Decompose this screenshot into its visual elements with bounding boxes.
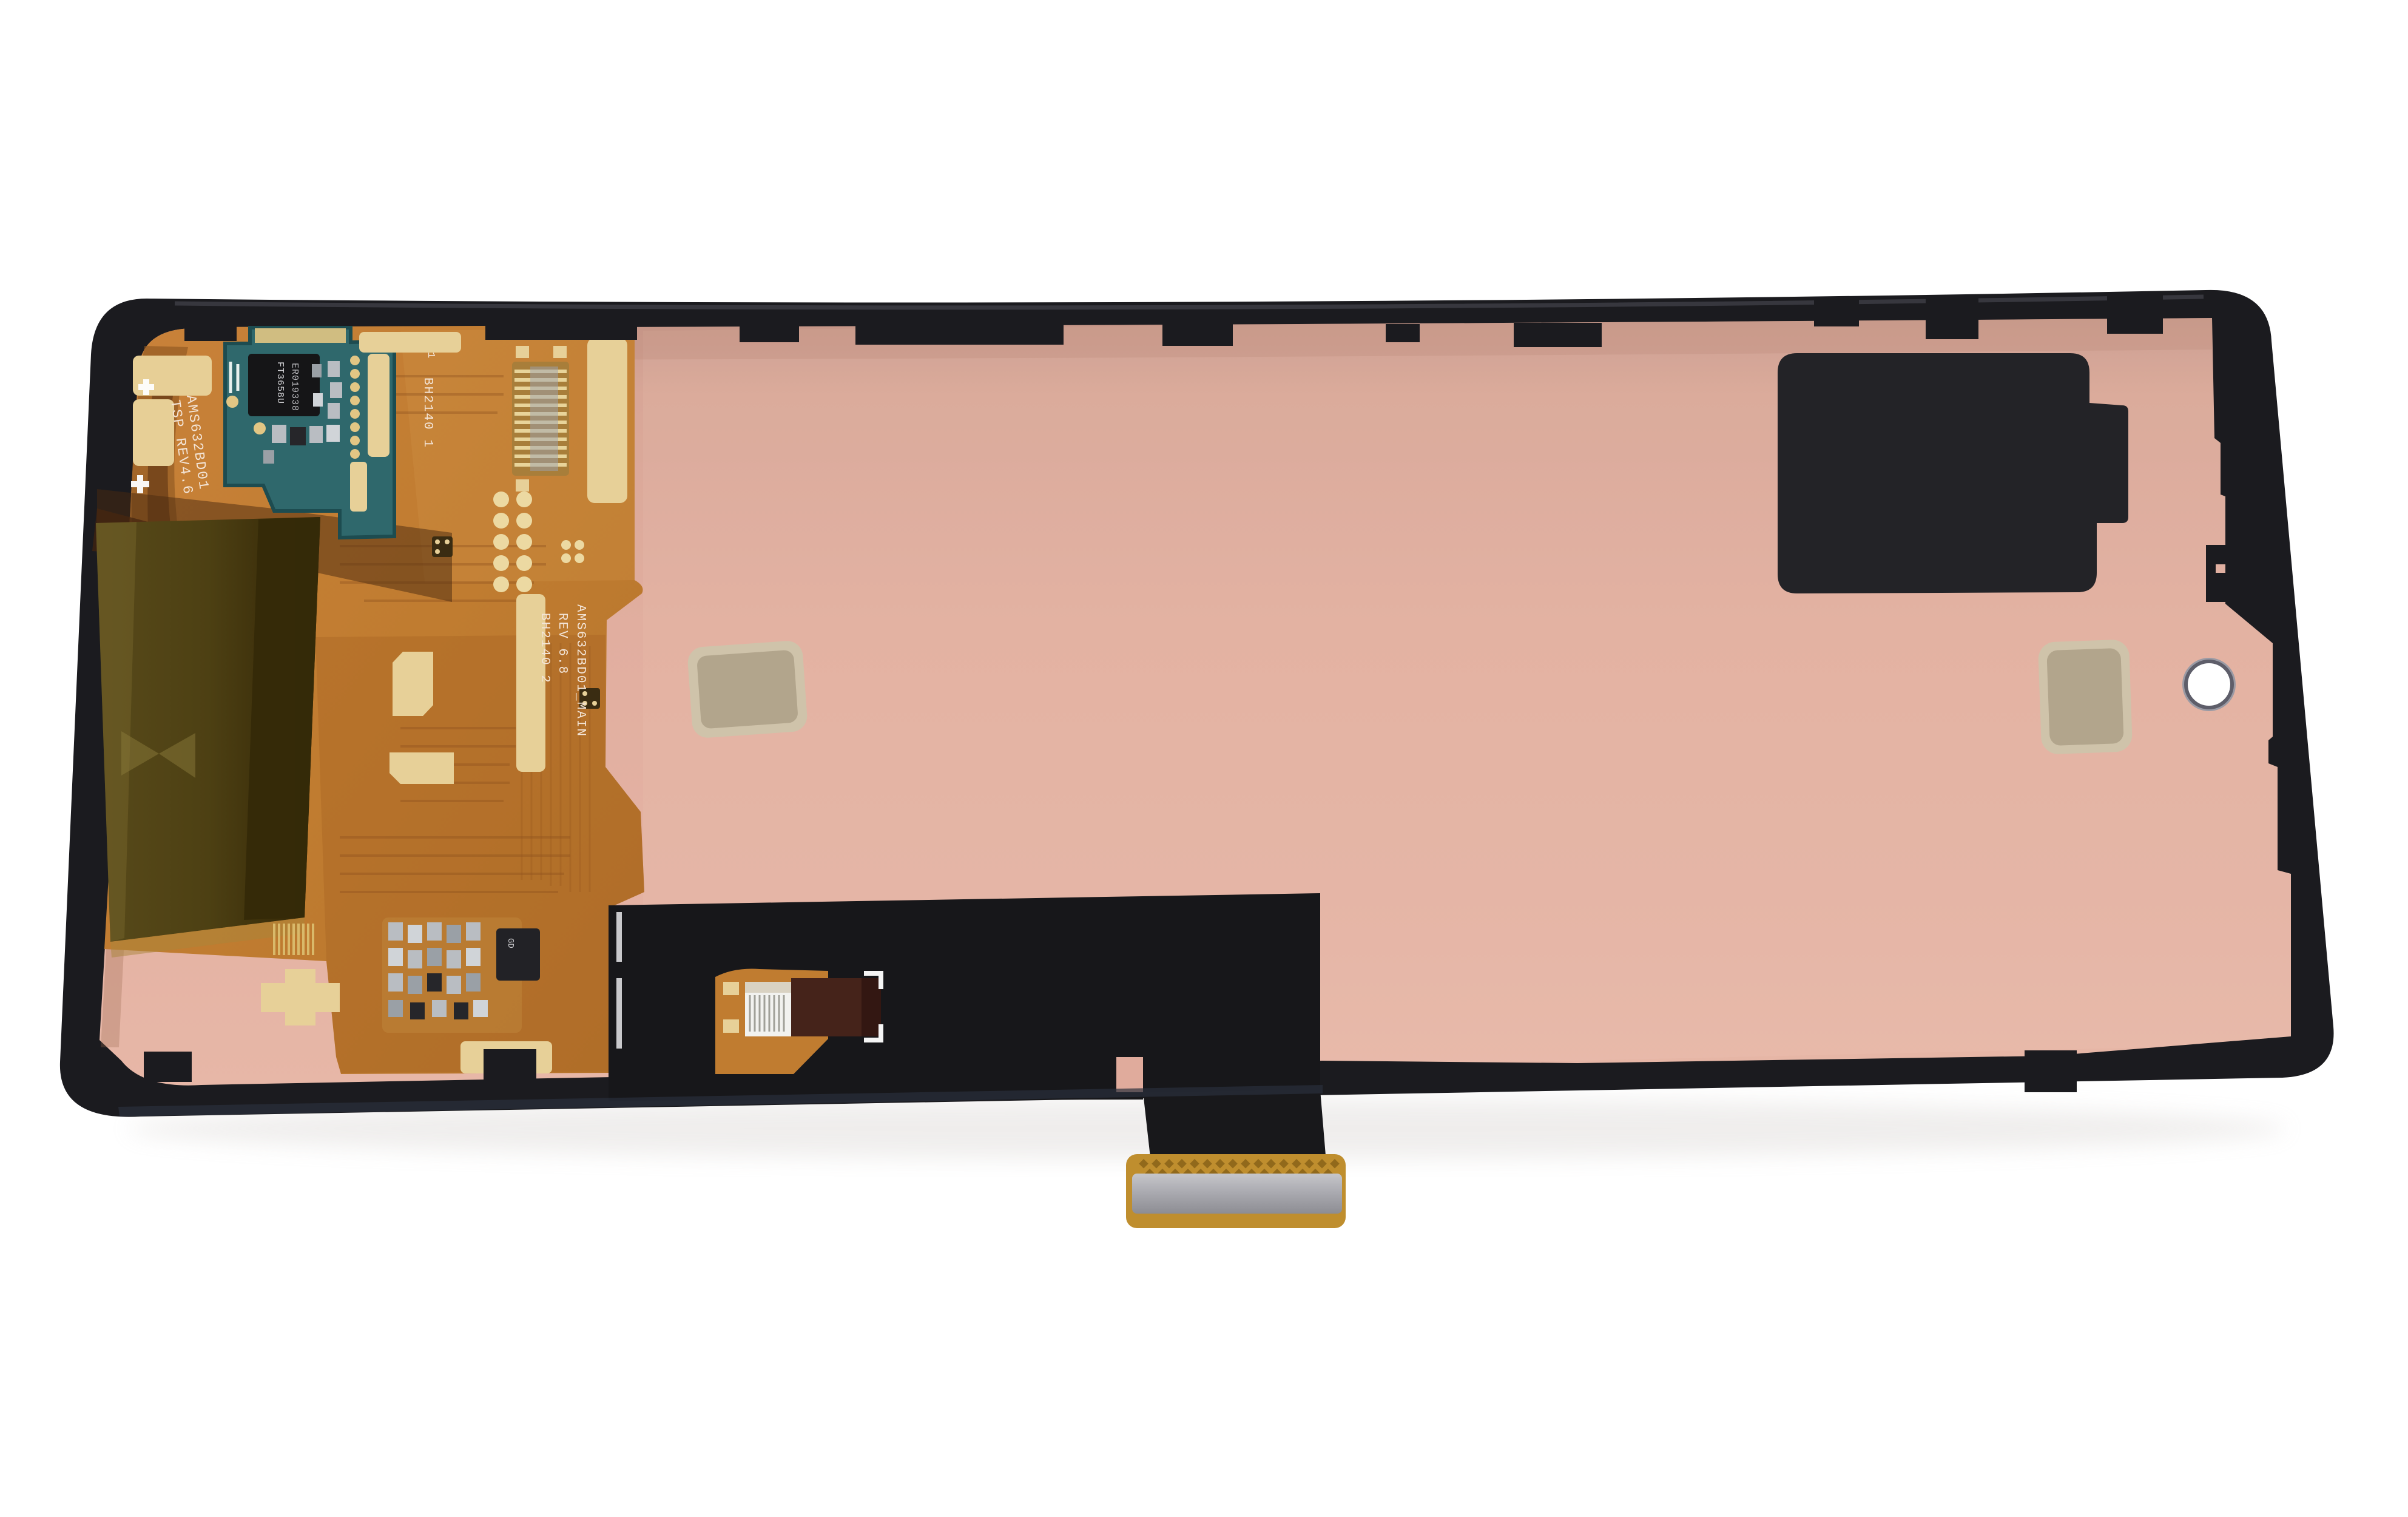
- svg-text:AMS632BD01_MAIN: AMS632BD01_MAIN: [573, 604, 587, 737]
- svg-text:GD: GD: [505, 938, 515, 948]
- svg-text:BH2140 1: BH2140 1: [420, 377, 434, 448]
- svg-text:1: 1: [425, 352, 436, 358]
- svg-text:BH2140 2: BH2140 2: [538, 613, 551, 684]
- svg-text:FT3658U: FT3658U: [275, 362, 285, 404]
- svg-text:REV 6.8: REV 6.8: [555, 613, 569, 675]
- svg-text:ER019338: ER019338: [289, 363, 300, 411]
